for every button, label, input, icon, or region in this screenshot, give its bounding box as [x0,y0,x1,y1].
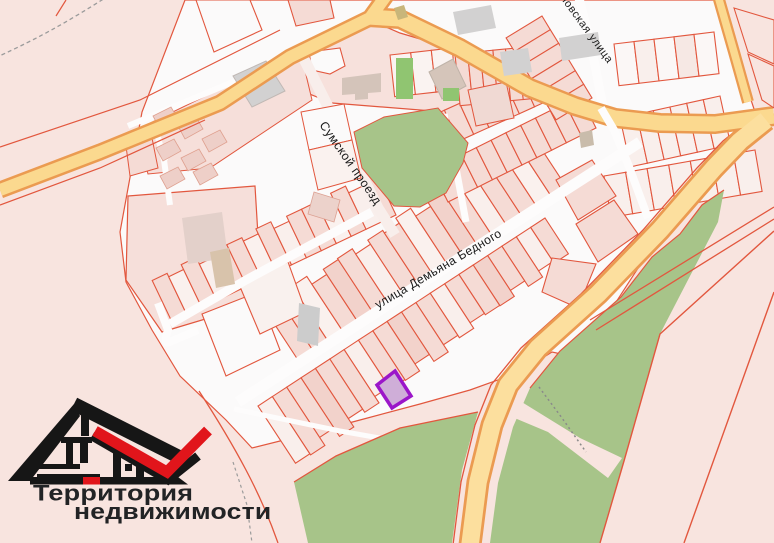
svg-text:недвижимости: недвижимости [74,500,271,525]
